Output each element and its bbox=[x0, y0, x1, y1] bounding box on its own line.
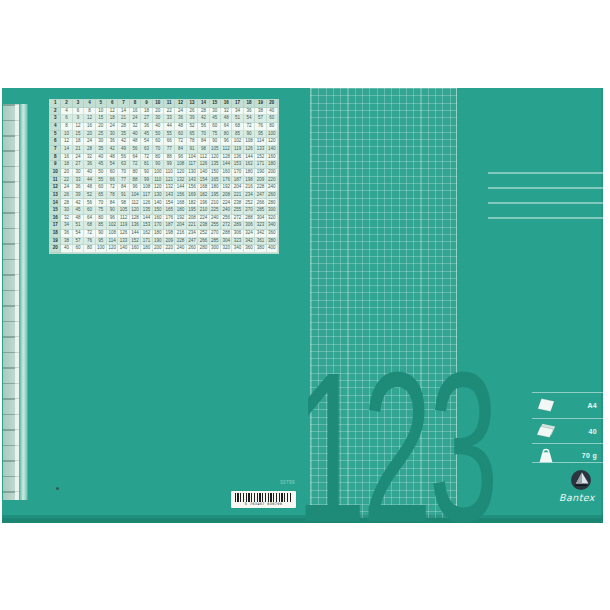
table-cell: 323 bbox=[255, 222, 266, 230]
table-cell: 150 bbox=[210, 169, 221, 177]
table-cell: 42 bbox=[73, 199, 84, 207]
table-cell: 342 bbox=[244, 238, 255, 246]
table-cell: 30 bbox=[96, 138, 107, 146]
table-cell: 120 bbox=[153, 184, 164, 192]
table-cell: 24 bbox=[130, 115, 141, 123]
ruled-line bbox=[488, 187, 603, 189]
table-cell: 72 bbox=[244, 123, 255, 131]
table-cell: 90 bbox=[244, 131, 255, 139]
table-cell: 180 bbox=[210, 184, 221, 192]
table-cell: 50 bbox=[96, 169, 107, 177]
table-cell: 66 bbox=[107, 177, 118, 185]
table-cell: 110 bbox=[153, 177, 164, 185]
table-cell: 28 bbox=[61, 199, 72, 207]
table-cell: 39 bbox=[73, 192, 84, 200]
format-label: A4 bbox=[587, 402, 597, 409]
table-cell: 160 bbox=[267, 154, 278, 162]
notepad-cover: 1234567891011121314151617181920246810121… bbox=[2, 88, 603, 523]
table-cell: 64 bbox=[130, 154, 141, 162]
barcode-bars bbox=[235, 493, 292, 502]
table-cell: 60 bbox=[175, 131, 186, 139]
table-cell: 260 bbox=[187, 245, 198, 253]
spec-panel: A4 40 70 g bbox=[532, 384, 603, 468]
table-cell: 247 bbox=[187, 238, 198, 246]
table-cell: 10 bbox=[96, 108, 107, 116]
table-cell: 208 bbox=[187, 215, 198, 223]
table-cell: 70 bbox=[198, 131, 209, 139]
table-cell: 169 bbox=[187, 192, 198, 200]
table-cell: 45 bbox=[210, 115, 221, 123]
table-cell: 168 bbox=[198, 184, 209, 192]
table-cell: 39 bbox=[187, 115, 198, 123]
table-cell: 30 bbox=[153, 115, 164, 123]
table-cell: 120 bbox=[210, 154, 221, 162]
table-cell: 306 bbox=[232, 230, 243, 238]
table-cell: 40 bbox=[84, 169, 95, 177]
table-cell: 96 bbox=[130, 184, 141, 192]
table-cell: 40 bbox=[153, 123, 164, 131]
table-cell: 25 bbox=[96, 131, 107, 139]
paper-weight-label: 70 g bbox=[582, 452, 597, 459]
table-cell: 13 bbox=[50, 192, 61, 200]
table-cell: 140 bbox=[198, 169, 209, 177]
table-cell: 140 bbox=[118, 245, 129, 253]
table-cell: 304 bbox=[255, 215, 266, 223]
table-cell: 90 bbox=[141, 169, 152, 177]
table-cell: 54 bbox=[244, 115, 255, 123]
table-cell: 52 bbox=[187, 123, 198, 131]
table-cell: 48 bbox=[107, 154, 118, 162]
table-cell: 240 bbox=[210, 215, 221, 223]
table-cell: 28 bbox=[118, 123, 129, 131]
table-cell: 44 bbox=[84, 177, 95, 185]
spec-row-sheet-count: 40 bbox=[532, 420, 603, 442]
table-cell: 160 bbox=[153, 215, 164, 223]
table-cell: 90 bbox=[96, 230, 107, 238]
table-cell: 255 bbox=[232, 207, 243, 215]
table-cell: 112 bbox=[130, 199, 141, 207]
table-cell: 70 bbox=[96, 199, 107, 207]
table-cell: 36 bbox=[175, 115, 186, 123]
table-cell: 120 bbox=[107, 245, 118, 253]
table-cell: 144 bbox=[244, 154, 255, 162]
table-cell: 16 bbox=[84, 123, 95, 131]
table-cell: 136 bbox=[232, 154, 243, 162]
table-cell: 2 bbox=[50, 108, 61, 116]
table-cell: 8 bbox=[84, 108, 95, 116]
table-cell: 10 bbox=[50, 169, 61, 177]
page-edges bbox=[3, 104, 15, 500]
table-cell: 49 bbox=[118, 146, 129, 154]
table-cell: 135 bbox=[141, 207, 152, 215]
table-cell: 1 bbox=[50, 100, 61, 108]
table-cell: 180 bbox=[141, 245, 152, 253]
table-cell: 36 bbox=[84, 161, 95, 169]
table-cell: 8 bbox=[130, 100, 141, 108]
table-cell: 57 bbox=[255, 115, 266, 123]
table-cell: 76 bbox=[255, 123, 266, 131]
table-cell: 104 bbox=[130, 192, 141, 200]
single-sheet-icon bbox=[535, 396, 557, 414]
table-cell: 78 bbox=[187, 138, 198, 146]
table-cell: 68 bbox=[84, 222, 95, 230]
table-cell: 19 bbox=[50, 238, 61, 246]
table-cell: 180 bbox=[267, 161, 278, 169]
table-cell: 361 bbox=[255, 238, 266, 246]
table-cell: 342 bbox=[255, 230, 266, 238]
table-cell: 380 bbox=[255, 245, 266, 253]
table-cell: 72 bbox=[107, 184, 118, 192]
table-cell: 42 bbox=[198, 115, 209, 123]
table-cell: 17 bbox=[232, 100, 243, 108]
table-cell: 48 bbox=[84, 184, 95, 192]
table-cell: 55 bbox=[164, 131, 175, 139]
table-cell: 54 bbox=[141, 138, 152, 146]
table-cell: 80 bbox=[96, 215, 107, 223]
table-cell: 76 bbox=[84, 238, 95, 246]
table-cell: 4 bbox=[61, 108, 72, 116]
table-cell: 198 bbox=[244, 177, 255, 185]
table-cell: 95 bbox=[255, 131, 266, 139]
table-cell: 120 bbox=[175, 169, 186, 177]
table-cell: 220 bbox=[267, 177, 278, 185]
table-cell: 340 bbox=[232, 245, 243, 253]
table-cell: 36 bbox=[244, 108, 255, 116]
table-cell: 75 bbox=[96, 207, 107, 215]
table-cell: 10 bbox=[153, 100, 164, 108]
table-cell: 15 bbox=[210, 100, 221, 108]
ruled-line bbox=[488, 172, 603, 174]
table-cell: 98 bbox=[118, 199, 129, 207]
table-cell: 6 bbox=[61, 115, 72, 123]
table-cell: 9 bbox=[141, 100, 152, 108]
table-cell: 11 bbox=[164, 100, 175, 108]
table-cell: 216 bbox=[244, 184, 255, 192]
table-cell: 238 bbox=[198, 222, 209, 230]
table-cell: 272 bbox=[232, 215, 243, 223]
table-cell: 195 bbox=[210, 192, 221, 200]
table-cell: 12 bbox=[84, 115, 95, 123]
table-cell: 285 bbox=[210, 238, 221, 246]
table-cell: 200 bbox=[267, 169, 278, 177]
table-cell: 18 bbox=[50, 230, 61, 238]
table-cell: 20 bbox=[96, 123, 107, 131]
table-cell: 9 bbox=[73, 115, 84, 123]
table-cell: 102 bbox=[107, 222, 118, 230]
table-cell: 360 bbox=[244, 245, 255, 253]
table-cell: 20 bbox=[153, 108, 164, 116]
table-cell: 6 bbox=[50, 138, 61, 146]
table-cell: 30 bbox=[61, 207, 72, 215]
brand-name: Bantex bbox=[550, 492, 604, 503]
table-cell: 176 bbox=[221, 177, 232, 185]
table-cell: 280 bbox=[198, 245, 209, 253]
table-cell: 80 bbox=[221, 131, 232, 139]
table-cell: 180 bbox=[244, 169, 255, 177]
table-cell: 112 bbox=[198, 154, 209, 162]
table-cell: 16 bbox=[221, 100, 232, 108]
table-cell: 180 bbox=[153, 230, 164, 238]
table-cell: 240 bbox=[175, 245, 186, 253]
table-cell: 153 bbox=[232, 161, 243, 169]
table-cell: 340 bbox=[267, 222, 278, 230]
table-cell: 33 bbox=[73, 177, 84, 185]
table-cell: 11 bbox=[50, 177, 61, 185]
table-cell: 40 bbox=[130, 131, 141, 139]
table-cell: 12 bbox=[175, 100, 186, 108]
table-cell: 117 bbox=[141, 192, 152, 200]
table-cell: 60 bbox=[267, 115, 278, 123]
table-cell: 135 bbox=[210, 161, 221, 169]
table-cell: 90 bbox=[153, 161, 164, 169]
table-cell: 204 bbox=[232, 184, 243, 192]
table-cell: 216 bbox=[175, 230, 186, 238]
table-cell: 24 bbox=[61, 184, 72, 192]
ruled-line bbox=[488, 202, 603, 204]
table-cell: 180 bbox=[175, 207, 186, 215]
table-cell: 320 bbox=[221, 245, 232, 253]
table-cell: 24 bbox=[107, 123, 118, 131]
table-cell: 51 bbox=[73, 222, 84, 230]
table-cell: 108 bbox=[244, 138, 255, 146]
table-cell: 306 bbox=[244, 222, 255, 230]
table-cell: 63 bbox=[118, 161, 129, 169]
table-cell: 143 bbox=[187, 177, 198, 185]
table-cell: 190 bbox=[153, 238, 164, 246]
table-cell: 95 bbox=[96, 238, 107, 246]
table-cell: 85 bbox=[96, 222, 107, 230]
table-cell: 170 bbox=[232, 169, 243, 177]
table-cell: 64 bbox=[221, 123, 232, 131]
table-cell: 42 bbox=[107, 146, 118, 154]
table-cell: 198 bbox=[164, 230, 175, 238]
table-cell: 126 bbox=[198, 161, 209, 169]
table-cell: 48 bbox=[130, 138, 141, 146]
table-cell: 72 bbox=[141, 154, 152, 162]
table-cell: 160 bbox=[130, 245, 141, 253]
table-cell: 18 bbox=[107, 115, 118, 123]
table-cell: 54 bbox=[73, 230, 84, 238]
table-cell: 270 bbox=[210, 230, 221, 238]
table-cell: 285 bbox=[255, 207, 266, 215]
table-cell: 24 bbox=[84, 138, 95, 146]
table-cell: 130 bbox=[187, 169, 198, 177]
table-cell: 38 bbox=[255, 108, 266, 116]
table-cell: 72 bbox=[175, 138, 186, 146]
table-cell: 16 bbox=[61, 154, 72, 162]
table-cell: 400 bbox=[267, 245, 278, 253]
table-cell: 128 bbox=[130, 215, 141, 223]
table-cell: 360 bbox=[267, 230, 278, 238]
table-cell: 182 bbox=[187, 199, 198, 207]
table-cell: 108 bbox=[175, 161, 186, 169]
table-cell: 114 bbox=[107, 238, 118, 246]
table-cell: 26 bbox=[61, 192, 72, 200]
spine-rivet-dot bbox=[56, 487, 59, 490]
table-cell: 12 bbox=[61, 138, 72, 146]
table-cell: 12 bbox=[73, 123, 84, 131]
sheet-stack-icon bbox=[535, 422, 557, 440]
table-cell: 140 bbox=[267, 146, 278, 154]
table-cell: 117 bbox=[187, 161, 198, 169]
table-cell: 4 bbox=[50, 123, 61, 131]
table-cell: 112 bbox=[118, 215, 129, 223]
table-cell: 24 bbox=[175, 108, 186, 116]
table-cell: 96 bbox=[175, 154, 186, 162]
table-cell: 18 bbox=[73, 138, 84, 146]
table-cell: 196 bbox=[198, 199, 209, 207]
table-cell: 300 bbox=[267, 207, 278, 215]
table-cell: 120 bbox=[267, 138, 278, 146]
table-cell: 256 bbox=[221, 215, 232, 223]
table-cell: 65 bbox=[187, 131, 198, 139]
table-cell: 84 bbox=[175, 146, 186, 154]
table-cell: 288 bbox=[244, 215, 255, 223]
table-cell: 8 bbox=[50, 154, 61, 162]
table-cell: 13 bbox=[187, 100, 198, 108]
table-cell: 190 bbox=[255, 169, 266, 177]
table-cell: 15 bbox=[50, 207, 61, 215]
table-cell: 45 bbox=[73, 207, 84, 215]
table-cell: 119 bbox=[118, 222, 129, 230]
table-cell: 70 bbox=[118, 169, 129, 177]
table-cell: 20 bbox=[50, 245, 61, 253]
table-cell: 60 bbox=[107, 169, 118, 177]
table-cell: 7 bbox=[118, 100, 129, 108]
table-cell: 228 bbox=[175, 238, 186, 246]
table-cell: 14 bbox=[61, 146, 72, 154]
table-cell: 21 bbox=[73, 146, 84, 154]
table-cell: 12 bbox=[50, 184, 61, 192]
table-cell: 2 bbox=[61, 100, 72, 108]
table-cell: 15 bbox=[73, 131, 84, 139]
table-cell: 26 bbox=[187, 108, 198, 116]
table-cell: 99 bbox=[141, 177, 152, 185]
table-cell: 6 bbox=[107, 100, 118, 108]
table-cell: 300 bbox=[210, 245, 221, 253]
table-cell: 133 bbox=[118, 238, 129, 246]
table-cell: 66 bbox=[164, 138, 175, 146]
table-cell: 48 bbox=[221, 115, 232, 123]
table-cell: 208 bbox=[221, 192, 232, 200]
table-cell: 289 bbox=[232, 222, 243, 230]
table-cell: 192 bbox=[221, 184, 232, 192]
table-cell: 60 bbox=[210, 123, 221, 131]
table-cell: 162 bbox=[244, 161, 255, 169]
table-cell: 30 bbox=[73, 169, 84, 177]
table-cell: 22 bbox=[61, 177, 72, 185]
table-cell: 380 bbox=[267, 238, 278, 246]
table-cell: 45 bbox=[141, 131, 152, 139]
table-cell: 133 bbox=[255, 146, 266, 154]
big-123-digits: 123 bbox=[296, 341, 495, 554]
table-cell: 38 bbox=[61, 238, 72, 246]
table-cell: 165 bbox=[210, 177, 221, 185]
table-cell: 56 bbox=[198, 123, 209, 131]
table-cell: 187 bbox=[232, 177, 243, 185]
table-cell: 100 bbox=[267, 131, 278, 139]
table-cell: 234 bbox=[187, 230, 198, 238]
table-cell: 5 bbox=[96, 100, 107, 108]
bantex-logo-icon bbox=[570, 469, 592, 491]
table-cell: 30 bbox=[107, 131, 118, 139]
table-cell: 4 bbox=[84, 100, 95, 108]
table-cell: 8 bbox=[61, 123, 72, 131]
table-cell: 33 bbox=[164, 115, 175, 123]
table-cell: 152 bbox=[255, 154, 266, 162]
table-cell: 77 bbox=[118, 177, 129, 185]
table-cell: 140 bbox=[153, 199, 164, 207]
table-cell: 209 bbox=[255, 177, 266, 185]
barcode-digits: 5 703467 030799 bbox=[231, 502, 296, 506]
table-cell: 266 bbox=[198, 238, 209, 246]
table-cell: 56 bbox=[130, 146, 141, 154]
table-cell: 60 bbox=[73, 245, 84, 253]
table-cell: 266 bbox=[255, 199, 266, 207]
table-cell: 21 bbox=[118, 115, 129, 123]
table-cell: 63 bbox=[141, 146, 152, 154]
table-cell: 260 bbox=[267, 192, 278, 200]
table-cell: 100 bbox=[153, 169, 164, 177]
table-cell: 20 bbox=[267, 100, 278, 108]
table-cell: 324 bbox=[244, 230, 255, 238]
table-cell: 40 bbox=[267, 108, 278, 116]
table-cell: 42 bbox=[118, 138, 129, 146]
table-cell: 35 bbox=[96, 146, 107, 154]
spec-divider bbox=[532, 418, 603, 419]
table-cell: 240 bbox=[221, 207, 232, 215]
table-cell: 20 bbox=[84, 131, 95, 139]
spec-row-format: A4 bbox=[532, 394, 603, 416]
table-cell: 100 bbox=[96, 245, 107, 253]
table-cell: 22 bbox=[164, 108, 175, 116]
table-cell: 156 bbox=[175, 192, 186, 200]
table-cell: 210 bbox=[198, 207, 209, 215]
table-cell: 160 bbox=[221, 169, 232, 177]
table-cell: 12 bbox=[107, 108, 118, 116]
table-cell: 240 bbox=[267, 184, 278, 192]
table-cell: 170 bbox=[153, 222, 164, 230]
table-cell: 162 bbox=[141, 230, 152, 238]
table-cell: 255 bbox=[210, 222, 221, 230]
table-cell: 80 bbox=[84, 245, 95, 253]
table-cell: 44 bbox=[164, 123, 175, 131]
table-cell: 72 bbox=[130, 161, 141, 169]
table-cell: 35 bbox=[118, 131, 129, 139]
table-cell: 90 bbox=[210, 138, 221, 146]
table-cell: 28 bbox=[84, 146, 95, 154]
table-cell: 119 bbox=[232, 146, 243, 154]
table-cell: 104 bbox=[187, 154, 198, 162]
table-cell: 96 bbox=[107, 215, 118, 223]
table-cell: 32 bbox=[221, 108, 232, 116]
table-cell: 36 bbox=[73, 184, 84, 192]
table-cell: 28 bbox=[198, 108, 209, 116]
table-cell: 5 bbox=[50, 131, 61, 139]
table-cell: 195 bbox=[187, 207, 198, 215]
table-cell: 114 bbox=[255, 138, 266, 146]
multiplication-table: 1234567891011121314151617181920246810121… bbox=[50, 100, 278, 253]
table-cell: 88 bbox=[164, 154, 175, 162]
table-cell: 30 bbox=[210, 108, 221, 116]
table-cell: 320 bbox=[267, 215, 278, 223]
table-cell: 15 bbox=[96, 115, 107, 123]
table-cell: 72 bbox=[84, 230, 95, 238]
table-cell: 60 bbox=[96, 184, 107, 192]
table-cell: 156 bbox=[187, 184, 198, 192]
table-cell: 7 bbox=[50, 146, 61, 154]
table-cell: 84 bbox=[118, 184, 129, 192]
